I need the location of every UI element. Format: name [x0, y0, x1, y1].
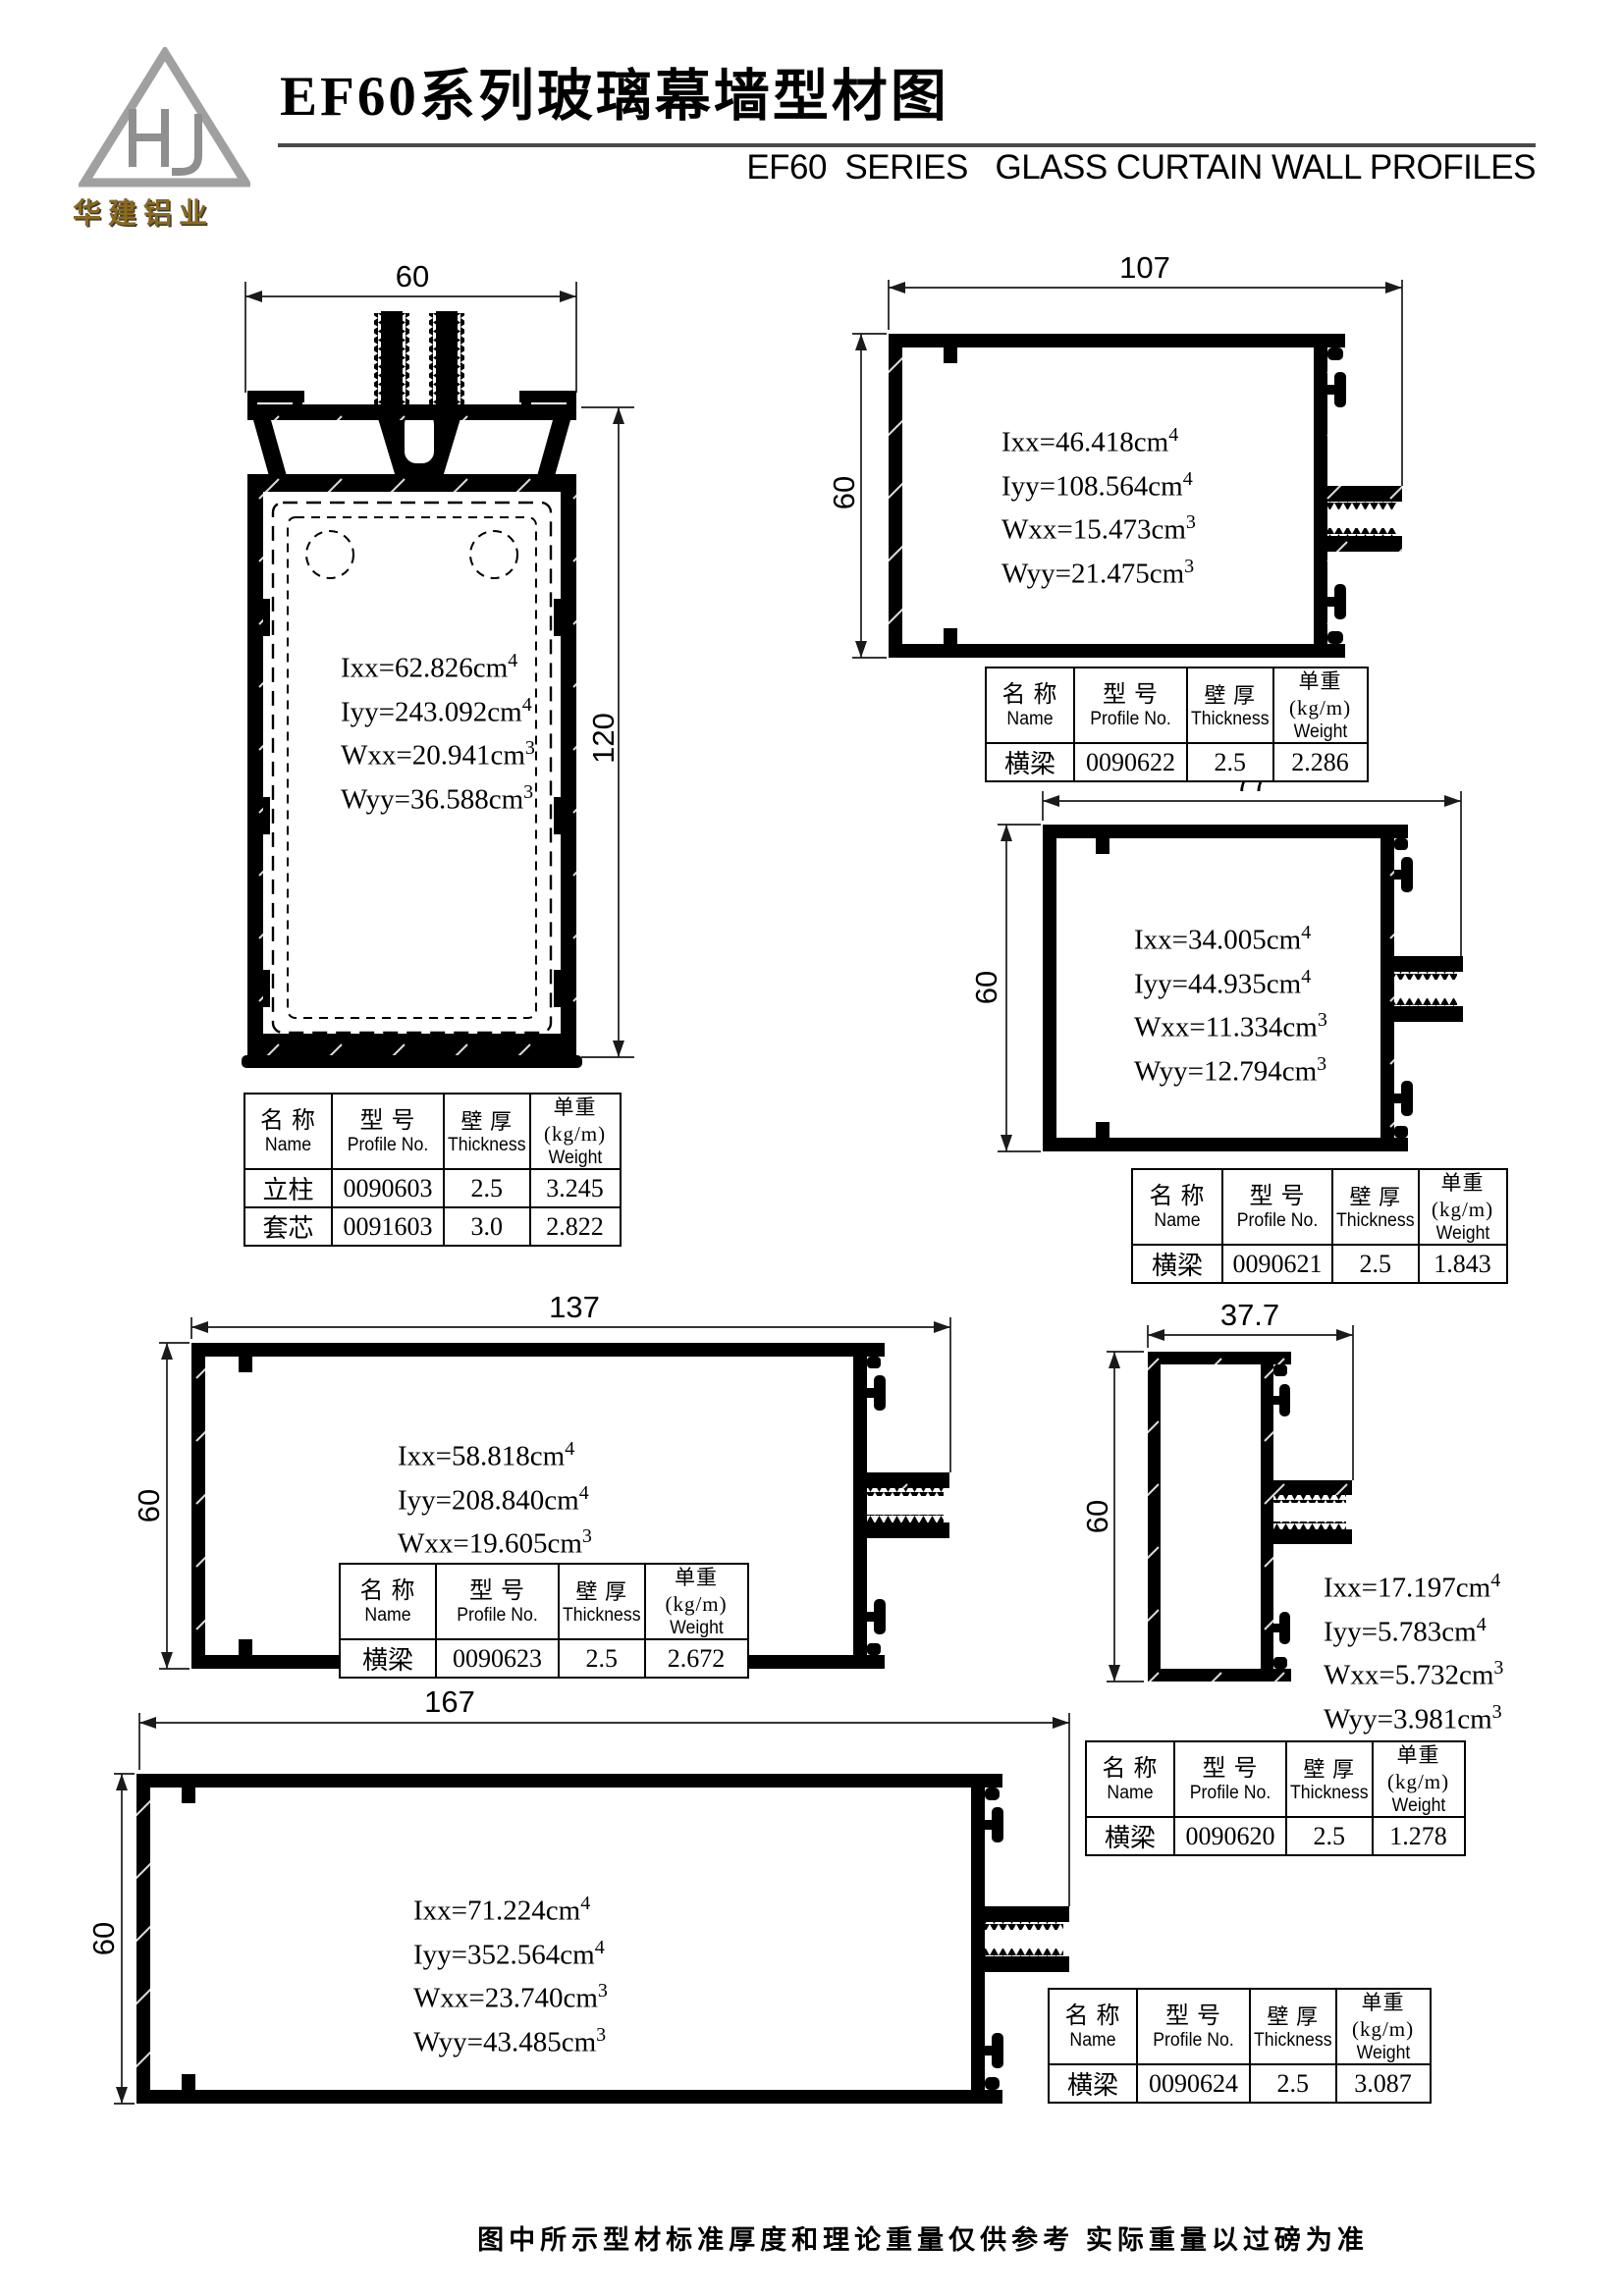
table-row: 横梁 0090622 2.5 2.286 — [986, 743, 1368, 781]
prop-line: Wyy=43.485cm3 — [413, 2017, 608, 2061]
prop-line: Iyy=243.092cm4 — [341, 687, 535, 731]
spec-table-mullion: 名 称Name 型 号Profile No. 壁 厚Thickness 单重(k… — [243, 1093, 622, 1247]
col-header-profile-no: 型 号Profile No. — [1174, 1741, 1286, 1817]
prop-line: Wyy=12.794cm3 — [1134, 1046, 1327, 1091]
table-header-row: 名 称Name 型 号Profile No. 壁 厚Thickness 单重(k… — [986, 667, 1368, 743]
prop-line: Wyy=3.981cm3 — [1324, 1694, 1503, 1738]
prop-line: Iyy=208.840cm4 — [398, 1475, 592, 1520]
transom-107-properties: Ixx=46.418cm4 Iyy=108.564cm4 Wxx=15.473c… — [1001, 417, 1196, 593]
prop-line: Iyy=108.564cm4 — [1001, 461, 1196, 506]
dim-width-transom-167: 167 — [406, 1684, 494, 1720]
spec-table-transom-137: 名 称Name 型 号Profile No. 壁 厚Thickness 单重(k… — [339, 1563, 749, 1679]
prop-line: Iyy=44.935cm4 — [1134, 959, 1327, 1003]
prop-line: Wyy=36.588cm3 — [341, 774, 535, 819]
table-row: 横梁 0090624 2.5 3.087 — [1049, 2064, 1431, 2103]
table-row: 套芯 0091603 3.0 2.822 — [244, 1207, 621, 1246]
col-header-weight: 单重(kg/m)Weight — [530, 1094, 621, 1169]
table-header-row: 名 称Name 型 号Profile No. 壁 厚Thickness 单重(k… — [340, 1564, 748, 1639]
col-header-profile-no: 型 号Profile No. — [1222, 1169, 1332, 1245]
col-header-name: 名 称Name — [244, 1094, 332, 1169]
prop-line: Ixx=46.418cm4 — [1001, 417, 1196, 461]
prop-line: Wxx=23.740cm3 — [413, 1973, 608, 2017]
prop-line: Ixx=58.818cm4 — [398, 1431, 592, 1475]
spec-table-transom-77: 名 称Name 型 号Profile No. 壁 厚Thickness 单重(k… — [1131, 1168, 1508, 1284]
catalog-page: 华建铝业 EF60系列玻璃幕墙型材图 EF60 SERIES GLASS CUR… — [0, 0, 1623, 2296]
col-header-weight: 单重(kg/m)Weight — [645, 1564, 748, 1639]
dim-height-transom-37: 60 — [1068, 1487, 1127, 1546]
prop-line: Wxx=15.473cm3 — [1001, 505, 1196, 549]
col-header-profile-no: 型 号Profile No. — [332, 1094, 444, 1169]
dim-height-mullion: 120 — [574, 709, 633, 768]
col-header-profile-no: 型 号Profile No. — [1074, 667, 1187, 743]
col-header-profile-no: 型 号Profile No. — [436, 1564, 559, 1639]
col-header-name: 名 称Name — [340, 1564, 436, 1639]
col-header-thickness: 壁 厚Thickness — [1332, 1169, 1419, 1245]
col-header-weight: 单重(kg/m)Weight — [1273, 667, 1368, 743]
dim-width-transom-37: 37.7 — [1206, 1298, 1294, 1333]
col-header-name: 名 称Name — [986, 667, 1074, 743]
dim-height-transom-137: 60 — [120, 1476, 179, 1535]
prop-line: Ixx=62.826cm4 — [341, 643, 535, 687]
table-row: 横梁 0090621 2.5 1.843 — [1132, 1245, 1507, 1283]
prop-line: Wxx=19.605cm3 — [398, 1519, 592, 1563]
table-header-row: 名 称Name 型 号Profile No. 壁 厚Thickness 单重(k… — [244, 1094, 621, 1169]
dim-width-transom-137: 137 — [530, 1290, 619, 1325]
col-header-thickness: 壁 厚Thickness — [1250, 1989, 1336, 2064]
table-header-row: 名 称Name 型 号Profile No. 壁 厚Thickness 单重(k… — [1132, 1169, 1507, 1245]
col-header-weight: 单重(kg/m)Weight — [1336, 1989, 1431, 2064]
spec-table-transom-167: 名 称Name 型 号Profile No. 壁 厚Thickness 单重(k… — [1048, 1988, 1432, 2104]
transom-77-properties: Ixx=34.005cm4 Iyy=44.935cm4 Wxx=11.334cm… — [1134, 915, 1327, 1091]
transom-37-drawing — [1107, 1325, 1353, 1682]
prop-line: Wyy=21.475cm3 — [1001, 549, 1196, 593]
col-header-thickness: 壁 厚Thickness — [1187, 667, 1273, 743]
dim-height-transom-167: 60 — [75, 1909, 134, 1968]
transom-37-properties: Ixx=17.197cm4 Iyy=5.783cm4 Wxx=5.732cm3 … — [1324, 1563, 1503, 1738]
col-header-profile-no: 型 号Profile No. — [1137, 1989, 1250, 2064]
col-header-weight: 单重(kg/m)Weight — [1419, 1169, 1507, 1245]
prop-line: Iyy=352.564cm4 — [413, 1930, 608, 1974]
table-header-row: 名 称Name 型 号Profile No. 壁 厚Thickness 单重(k… — [1049, 1989, 1431, 2064]
dim-width-transom-107: 107 — [1115, 250, 1174, 286]
footer-note: 图中所示型材标准厚度和理论重量仅供参考 实际重量以过磅为准 — [471, 2218, 1375, 2257]
prop-line: Wxx=11.334cm3 — [1134, 1002, 1327, 1046]
dim-height-transom-107: 60 — [815, 463, 874, 522]
col-header-name: 名 称Name — [1132, 1169, 1222, 1245]
col-header-name: 名 称Name — [1086, 1741, 1174, 1817]
spec-table-transom-37: 名 称Name 型 号Profile No. 壁 厚Thickness 单重(k… — [1085, 1740, 1466, 1856]
col-header-thickness: 壁 厚Thickness — [444, 1094, 530, 1169]
col-header-name: 名 称Name — [1049, 1989, 1137, 2064]
table-header-row: 名 称Name 型 号Profile No. 壁 厚Thickness 单重(k… — [1086, 1741, 1465, 1817]
transom-167-properties: Ixx=71.224cm4 Iyy=352.564cm4 Wxx=23.740c… — [413, 1886, 608, 2061]
prop-line: Ixx=71.224cm4 — [413, 1886, 608, 1930]
prop-line: Wxx=5.732cm3 — [1324, 1650, 1503, 1694]
prop-line: Iyy=5.783cm4 — [1324, 1607, 1503, 1651]
dim-height-transom-77: 60 — [957, 958, 1016, 1017]
prop-line: Ixx=34.005cm4 — [1134, 915, 1327, 959]
prop-line: Ixx=17.197cm4 — [1324, 1563, 1503, 1607]
prop-line: Wxx=20.941cm3 — [341, 730, 535, 774]
col-header-thickness: 壁 厚Thickness — [559, 1564, 645, 1639]
dim-width-mullion: 60 — [383, 259, 442, 294]
table-row: 立柱 0090603 2.5 3.245 — [244, 1169, 621, 1207]
mullion-properties: Ixx=62.826cm4 Iyy=243.092cm4 Wxx=20.941c… — [341, 643, 535, 819]
col-header-weight: 单重(kg/m)Weight — [1373, 1741, 1465, 1817]
table-row: 横梁 0090623 2.5 2.672 — [340, 1639, 748, 1678]
spec-table-transom-107: 名 称Name 型 号Profile No. 壁 厚Thickness 单重(k… — [985, 667, 1369, 782]
table-row: 横梁 0090620 2.5 1.278 — [1086, 1817, 1465, 1855]
col-header-thickness: 壁 厚Thickness — [1286, 1741, 1373, 1817]
